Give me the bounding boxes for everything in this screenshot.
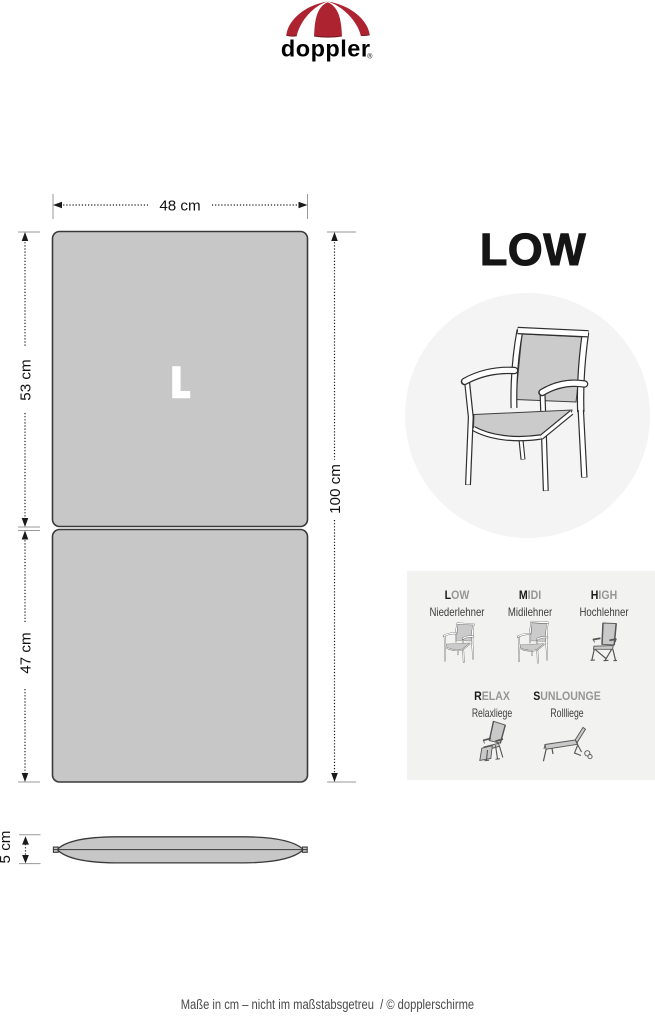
svg-text:53 cm: 53 cm	[18, 359, 35, 400]
svg-text:100 cm: 100 cm	[327, 464, 344, 514]
svg-text:48 cm: 48 cm	[159, 198, 200, 215]
svg-text:5 cm: 5 cm	[0, 831, 14, 864]
svg-text:47 cm: 47 cm	[18, 632, 35, 673]
svg-text:doppler: doppler	[281, 35, 371, 61]
svg-text:®: ®	[367, 53, 373, 61]
